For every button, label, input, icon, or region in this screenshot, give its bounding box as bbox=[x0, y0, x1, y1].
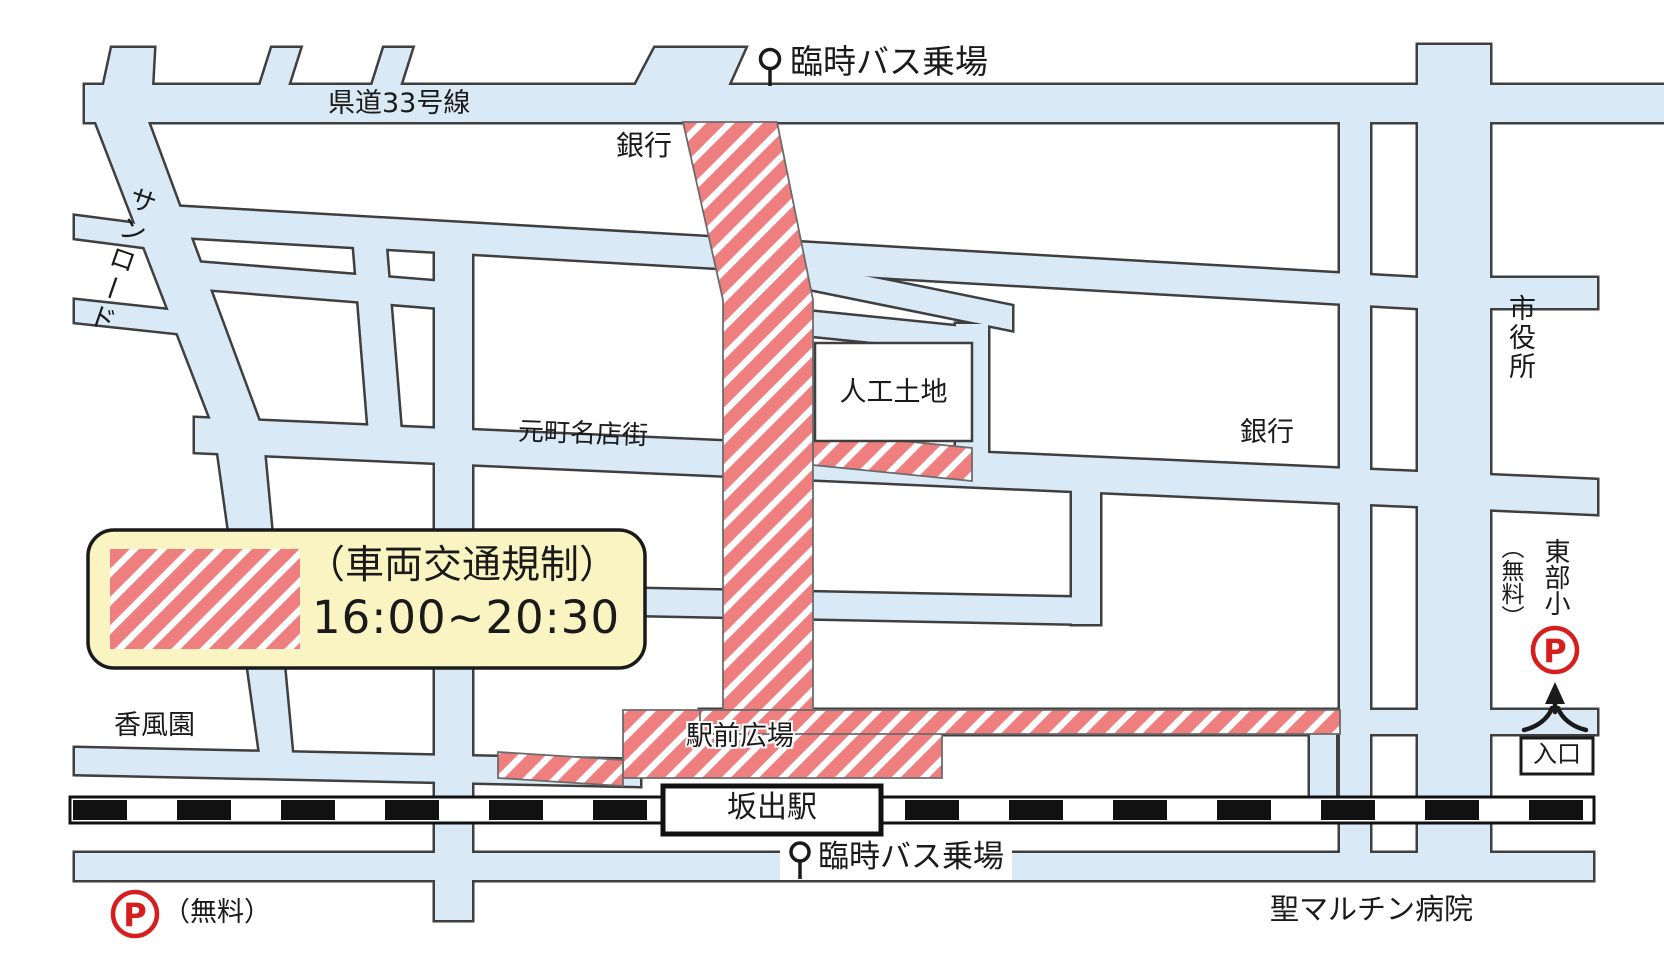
legend-stripe-swatch bbox=[110, 549, 300, 649]
parking-left-icon: P bbox=[113, 892, 157, 936]
restricted-corridor bbox=[683, 122, 813, 714]
traffic-regulation-map: P P 県道33号線 臨時バス乗場 サンロード 銀行 人工土地 元町名店街 銀行… bbox=[0, 0, 1664, 956]
place-label-hospital: 聖マルチン病院 bbox=[1270, 894, 1473, 924]
place-label-bank-right: 銀行 bbox=[1240, 419, 1294, 447]
legend-line2: 16:00~20:30 bbox=[312, 594, 620, 641]
place-label-jinko-tochi: 人工土地 bbox=[815, 379, 972, 407]
parking-left-free-label: （無料） bbox=[163, 899, 271, 927]
bus-stop-bottom-label: 臨時バス乗場 bbox=[818, 841, 1004, 874]
place-label-city-hall: 市役所 bbox=[1506, 294, 1533, 381]
road-label-route33: 県道33号線 bbox=[328, 90, 470, 118]
bus-stop-top-icon bbox=[761, 50, 780, 87]
parking-right-icon: P bbox=[1533, 628, 1577, 672]
station-label: 坂出駅 bbox=[663, 792, 881, 824]
place-label-kofuen: 香風園 bbox=[114, 712, 195, 740]
road-label-motomachi: 元町名店街 bbox=[518, 419, 649, 451]
parking-right-free-label: （無料） bbox=[1498, 536, 1521, 628]
place-label-bank-top: 銀行 bbox=[616, 131, 672, 160]
place-label-ekimae-plaza: 駅前広場 bbox=[686, 723, 794, 751]
parking-left-letter: P bbox=[123, 896, 146, 934]
place-label-tobu-elementary: 東部小 bbox=[1542, 538, 1568, 616]
entrance-label: 入口 bbox=[1521, 742, 1593, 767]
parking-right-letter: P bbox=[1543, 632, 1566, 670]
bus-stop-top-label: 臨時バス乗場 bbox=[790, 45, 988, 80]
restricted-band-east bbox=[700, 710, 1340, 734]
legend-line1: （車両交通規制） bbox=[306, 546, 618, 587]
